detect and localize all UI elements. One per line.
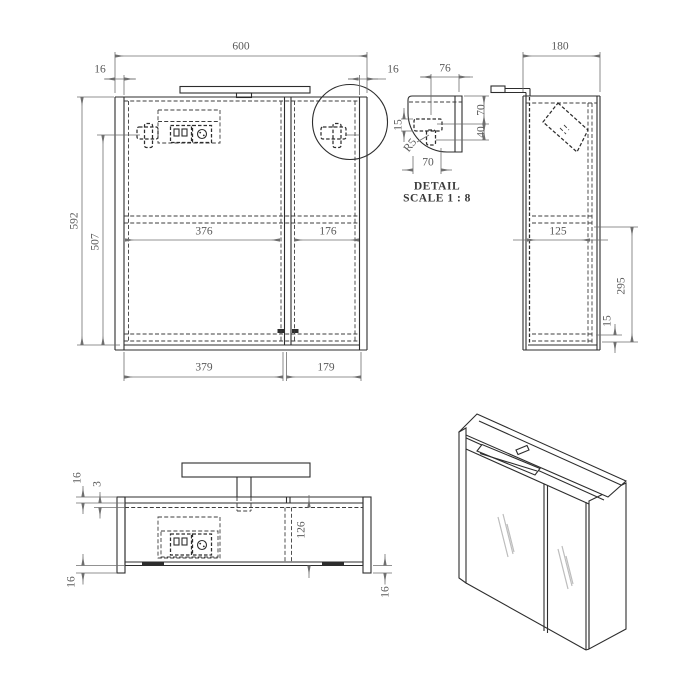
iso-view bbox=[459, 414, 626, 650]
dim-plan-right-overhang: 16 bbox=[380, 586, 392, 598]
side-view bbox=[491, 52, 638, 353]
dim-side-shelf-to-bottom: 295 bbox=[616, 277, 628, 294]
plan-electric-box bbox=[158, 517, 220, 558]
dim-detail-top: 76 bbox=[439, 63, 451, 75]
front-electric-box bbox=[158, 110, 220, 143]
drawing-sheet: 600 16 16 592 507 376 176 379 179 76 70 … bbox=[0, 0, 700, 700]
dim-detail-upper: 70 bbox=[476, 104, 488, 116]
detail-balloon-circle bbox=[313, 85, 388, 160]
iso-left-edge bbox=[459, 428, 466, 583]
detail-title: DETAIL bbox=[414, 181, 460, 193]
dim-plan-inner-depth: 126 bbox=[296, 521, 308, 538]
top-view bbox=[76, 463, 392, 585]
dim-front-left-panel: 16 bbox=[94, 64, 106, 76]
dim-plan-left-overhang: 16 bbox=[66, 576, 78, 588]
dim-front-inner-left: 376 bbox=[195, 226, 212, 238]
dim-front-hinge-height: 507 bbox=[90, 233, 102, 250]
dim-front-right-panel: 16 bbox=[387, 64, 399, 76]
dim-detail-hinge-plate: 15 bbox=[393, 119, 405, 131]
dim-front-left-door: 379 bbox=[195, 362, 212, 374]
dim-front-right-door: 179 bbox=[317, 362, 334, 374]
dim-front-overall-height: 592 bbox=[69, 212, 81, 229]
front-view bbox=[77, 52, 388, 381]
dim-detail-lower: 40 bbox=[476, 126, 488, 138]
plan-lamp-bar bbox=[182, 463, 310, 477]
dim-front-inner-right: 176 bbox=[319, 226, 336, 238]
detail-scale-note: SCALE 1 : 8 bbox=[403, 193, 471, 205]
dim-side-depth: 180 bbox=[551, 41, 568, 53]
detail-view bbox=[401, 74, 489, 174]
dim-plan-door-thickness: 16 bbox=[72, 472, 84, 484]
side-lamp-head bbox=[491, 86, 505, 93]
iso-right-side bbox=[589, 483, 626, 649]
dim-plan-back-gap: 3 bbox=[92, 481, 104, 487]
side-hinge-bracket bbox=[543, 103, 588, 152]
dim-side-bottom-panel: 15 bbox=[602, 315, 614, 327]
dim-detail-bottom: 70 bbox=[422, 157, 434, 169]
front-lamp-bar bbox=[180, 87, 310, 94]
dim-front-overall-width: 600 bbox=[232, 41, 249, 53]
dim-side-inner-depth: 125 bbox=[549, 226, 566, 238]
cad-linework bbox=[0, 0, 700, 700]
iso-top-face bbox=[459, 414, 626, 497]
